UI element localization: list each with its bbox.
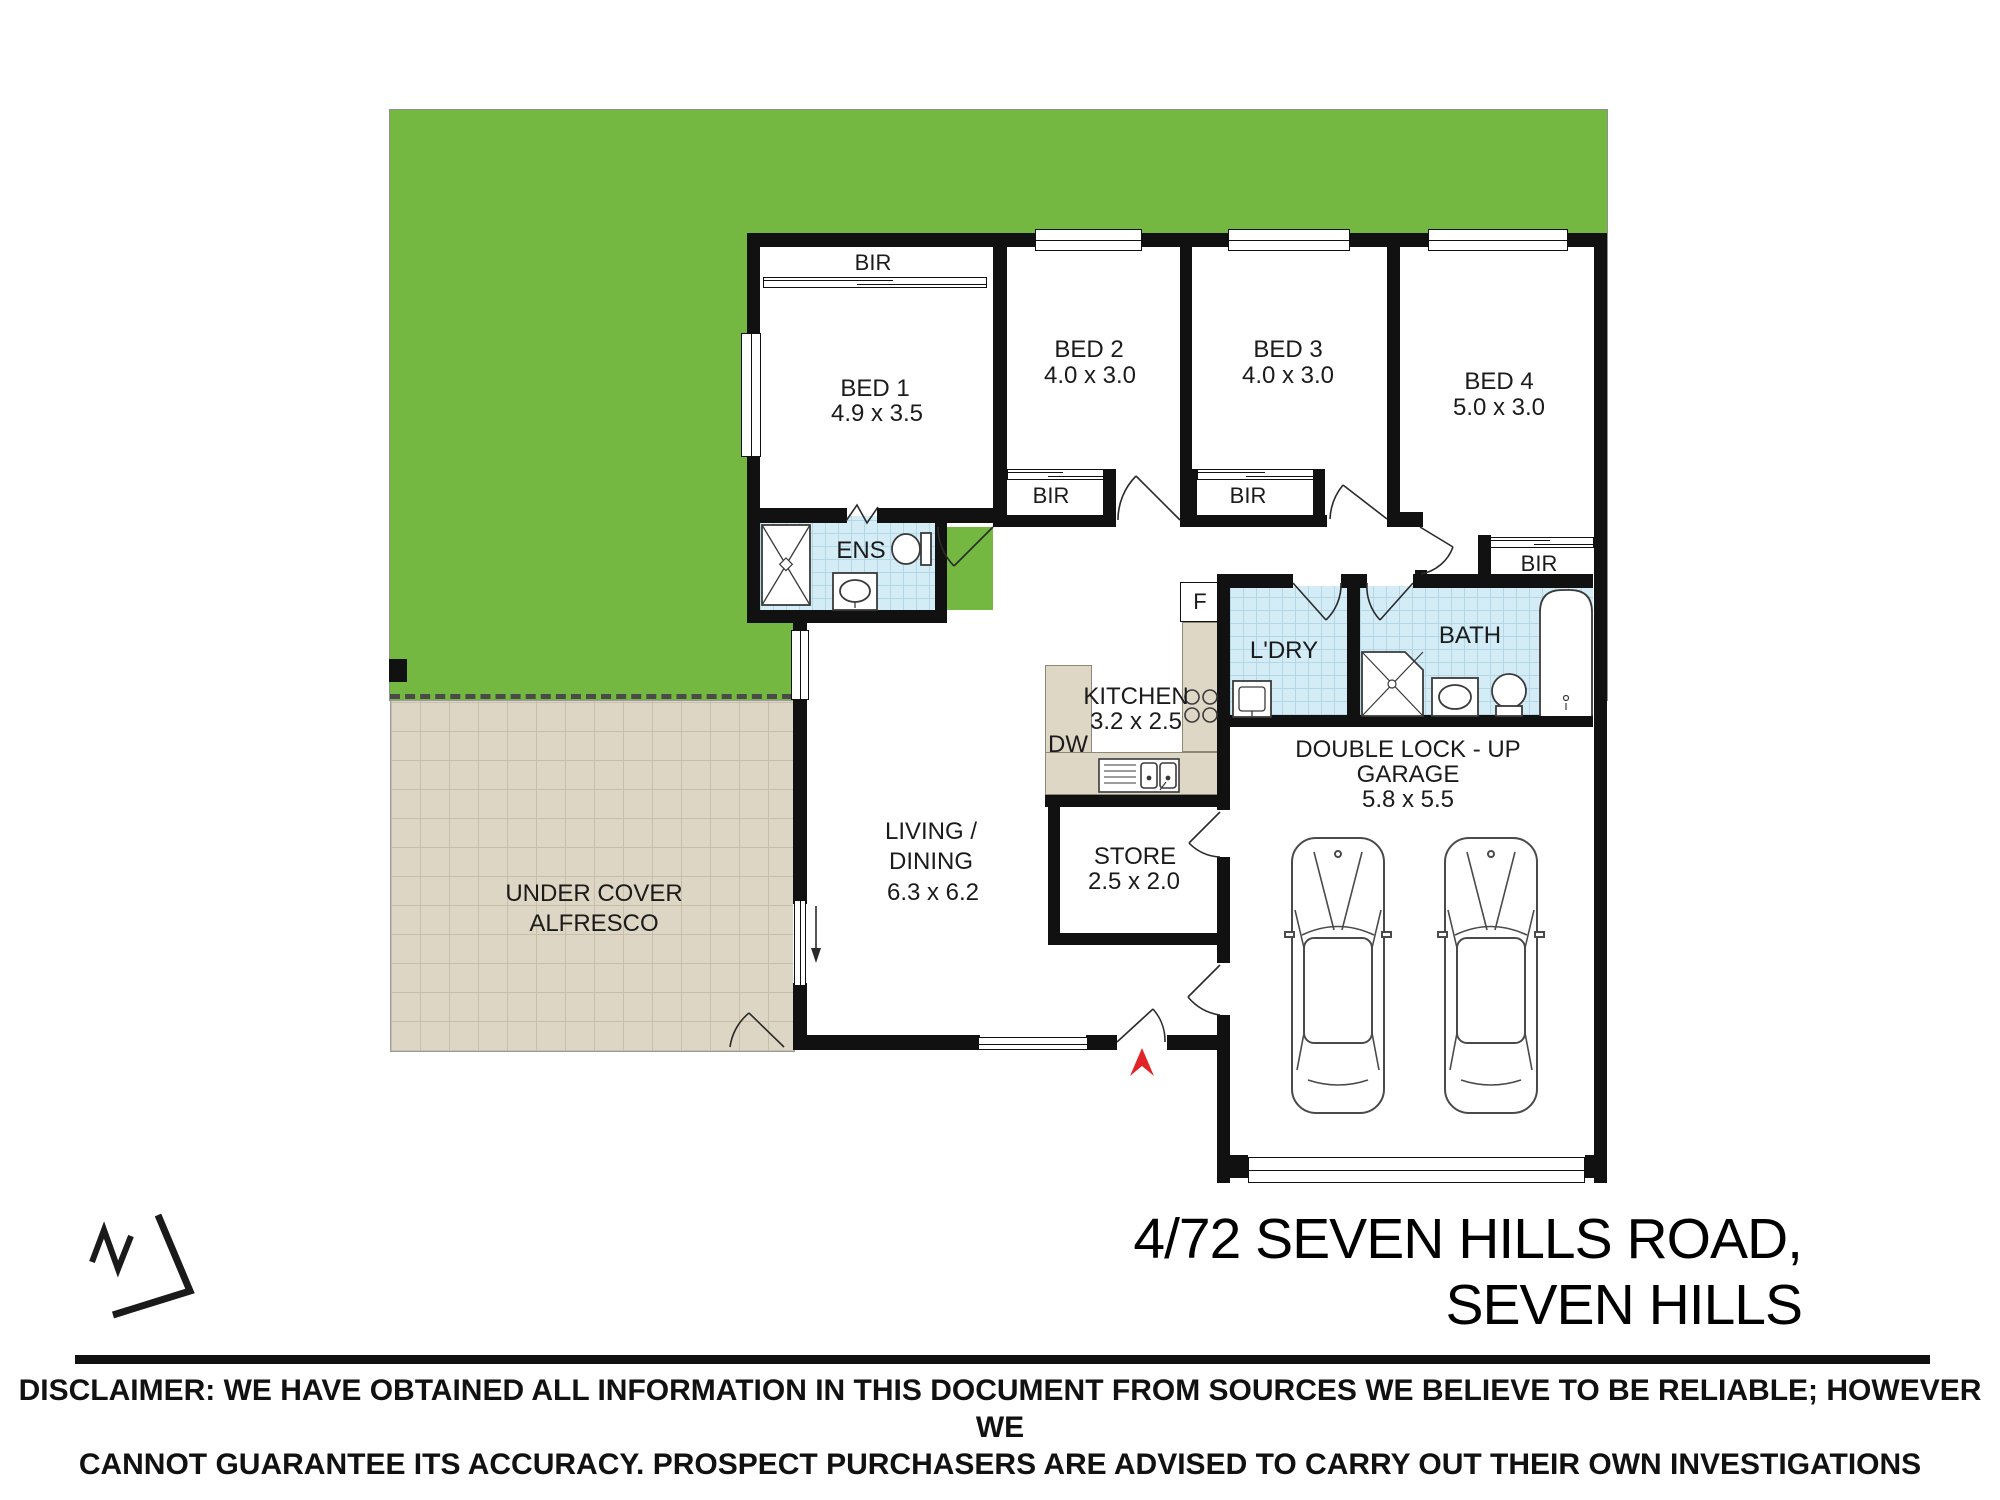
bed4-label: BED 4 [1464, 370, 1533, 394]
ensuite-label: ENS [836, 539, 885, 563]
alfresco-label-1: UNDER COVER [505, 882, 682, 906]
toilet-icon [1492, 674, 1526, 708]
toilet-icon [892, 534, 920, 564]
door-laundry [1293, 583, 1341, 620]
bed4-dims: 5.0 x 3.0 [1453, 396, 1545, 420]
bir1-label: BIR [855, 252, 892, 274]
bed3-label: BED 3 [1253, 338, 1322, 362]
bir4-label: BIR [1521, 553, 1558, 575]
door-bed4 [1420, 527, 1453, 574]
dishwasher-label: DW [1048, 733, 1088, 757]
disclaimer-line-1: DISCLAIMER: WE HAVE OBTAINED ALL INFORMA… [0, 1372, 2000, 1446]
bir2-label: BIR [1033, 485, 1070, 507]
bath-label: BATH [1439, 624, 1501, 648]
door-bed2 [1118, 476, 1180, 520]
bed2-dims: 4.0 x 3.0 [1044, 364, 1136, 388]
disclaimer-line-2: CANNOT GUARANTEE ITS ACCURACY. PROSPECT … [0, 1446, 2000, 1483]
kitchen-dims: 3.2 x 2.5 [1090, 710, 1182, 734]
kitchen-label: KITCHEN [1083, 685, 1188, 709]
door-bed1 [938, 527, 993, 566]
bathroom-fixtures [1362, 590, 1592, 716]
bed1-label: BED 1 [840, 377, 909, 401]
footer-divider [75, 1355, 1930, 1364]
garage-dims: 5.8 x 5.5 [1362, 788, 1454, 812]
bir3-label: BIR [1230, 485, 1267, 507]
living-dims: 6.3 x 6.2 [887, 881, 979, 905]
door-store [1189, 812, 1220, 857]
car-icon [1285, 838, 1391, 1113]
north-arrow-icon [92, 1215, 190, 1315]
address-line-1: 4/72 SEVEN HILLS ROAD, [1133, 1206, 1802, 1272]
store-dims: 2.5 x 2.0 [1088, 870, 1180, 894]
fridge-label: F [1193, 591, 1206, 613]
disclaimer: DISCLAIMER: WE HAVE OBTAINED ALL INFORMA… [0, 1372, 2000, 1483]
sliding-door-arrowhead [811, 948, 821, 963]
car-icon [1438, 838, 1544, 1113]
bed1-dims: 4.9 x 3.5 [831, 402, 923, 426]
garage-label-1: DOUBLE LOCK - UP [1295, 738, 1520, 762]
address-line-2: SEVEN HILLS [1133, 1272, 1802, 1338]
door-garage-entry [1188, 965, 1220, 1015]
door-bed3 [1330, 485, 1387, 519]
store-label: STORE [1094, 845, 1176, 869]
bed2-label: BED 2 [1054, 338, 1123, 362]
alfresco-label-2: ALFRESCO [529, 912, 658, 936]
living-label-1: LIVING / [885, 820, 977, 844]
door-ens-squiggle [846, 505, 878, 523]
door-alfresco [730, 1013, 784, 1047]
bed3-dims: 4.0 x 3.0 [1242, 364, 1334, 388]
sink-icon [1099, 759, 1179, 792]
garage-label-2: GARAGE [1357, 763, 1460, 787]
door-bath [1367, 583, 1413, 620]
laundry-tub-icon [1233, 681, 1271, 717]
entry-arrow-icon [1130, 1048, 1154, 1076]
property-address: 4/72 SEVEN HILLS ROAD, SEVEN HILLS [1133, 1206, 1802, 1338]
door-front-entry [1117, 1009, 1165, 1042]
living-label-2: DINING [889, 850, 973, 874]
floorplan-page: BIR BED 1 4.9 x 3.5 BED 2 4.0 x 3.0 BED … [0, 0, 2000, 1500]
laundry-label: L'DRY [1250, 639, 1318, 663]
